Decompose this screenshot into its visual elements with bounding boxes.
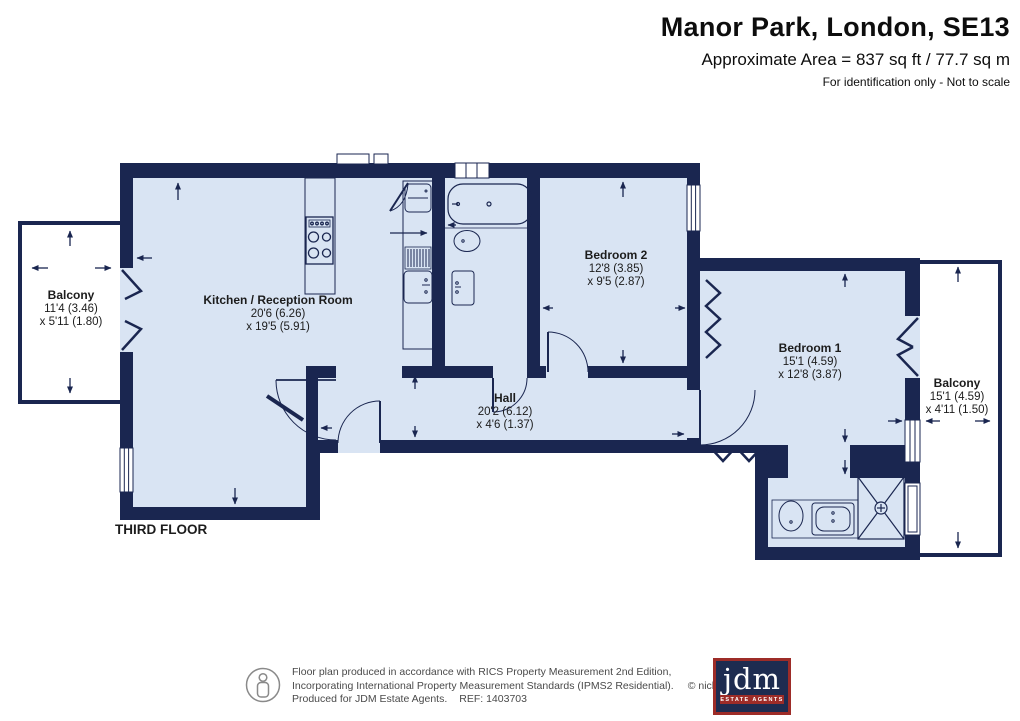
kitchen-label: Kitchen / Reception Room — [203, 293, 352, 307]
bedroom2-dim1: 12'8 (3.85) — [589, 263, 644, 275]
footer: Floor plan produced in accordance with R… — [244, 666, 773, 707]
jdm-logo-name: jdm — [716, 664, 788, 694]
window-bedroom1-balcony — [905, 420, 920, 462]
window-showerroom — [905, 483, 920, 535]
window-bathroom-top — [455, 163, 489, 178]
footer-line2: Incorporating International Property Mea… — [292, 680, 674, 692]
balcony-left-dim2: x 5'11 (1.80) — [40, 316, 103, 328]
floorplan-page: Manor Park, London, SE13 Approximate Are… — [0, 0, 1020, 721]
room-bathroom — [445, 178, 527, 366]
balcony-right-dim1: 15'1 (4.59) — [930, 391, 985, 403]
room-kitchen — [133, 178, 432, 507]
footer-line1: Floor plan produced in accordance with R… — [292, 666, 671, 678]
bedroom1-dim1: 15'1 (4.59) — [783, 356, 838, 368]
bedroom1-label: Bedroom 1 — [779, 341, 842, 355]
measurer-icon — [244, 666, 282, 704]
hall-dim2: x 4'6 (1.37) — [476, 419, 533, 431]
window-bay-top — [337, 154, 388, 164]
balcony-left-dim1: 11'4 (3.46) — [44, 303, 98, 315]
bedroom1-dim2: x 12'8 (3.87) — [778, 369, 842, 381]
floor-plan-drawing: Kitchen / Reception Room 20'6 (6.26) x 1… — [0, 0, 1020, 721]
kitchen-dim2: x 19'5 (5.91) — [246, 321, 310, 333]
jdm-logo: jdm ESTATE AGENTS — [713, 658, 791, 715]
jdm-logo-tagline: ESTATE AGENTS — [720, 695, 784, 704]
window-kitchen-left — [120, 448, 133, 492]
bedroom2-dim2: x 9'5 (2.87) — [587, 276, 644, 288]
hall-dim1: 20'2 (6.12) — [478, 406, 533, 418]
balcony-right-dim2: x 4'11 (1.50) — [926, 404, 989, 416]
footer-ref: REF: 1403703 — [459, 693, 527, 705]
footer-text: Floor plan produced in accordance with R… — [292, 666, 773, 707]
bedroom2-label: Bedroom 2 — [585, 248, 648, 262]
balcony-right-label: Balcony — [934, 376, 981, 390]
kitchen-dim1: 20'6 (6.26) — [251, 308, 306, 320]
footer-line3: Produced for JDM Estate Agents. — [292, 693, 447, 705]
hall-label: Hall — [494, 391, 516, 405]
window-bedroom2-right — [687, 185, 700, 231]
balcony-left-label: Balcony — [48, 288, 95, 302]
floor-label: THIRD FLOOR — [115, 522, 207, 537]
